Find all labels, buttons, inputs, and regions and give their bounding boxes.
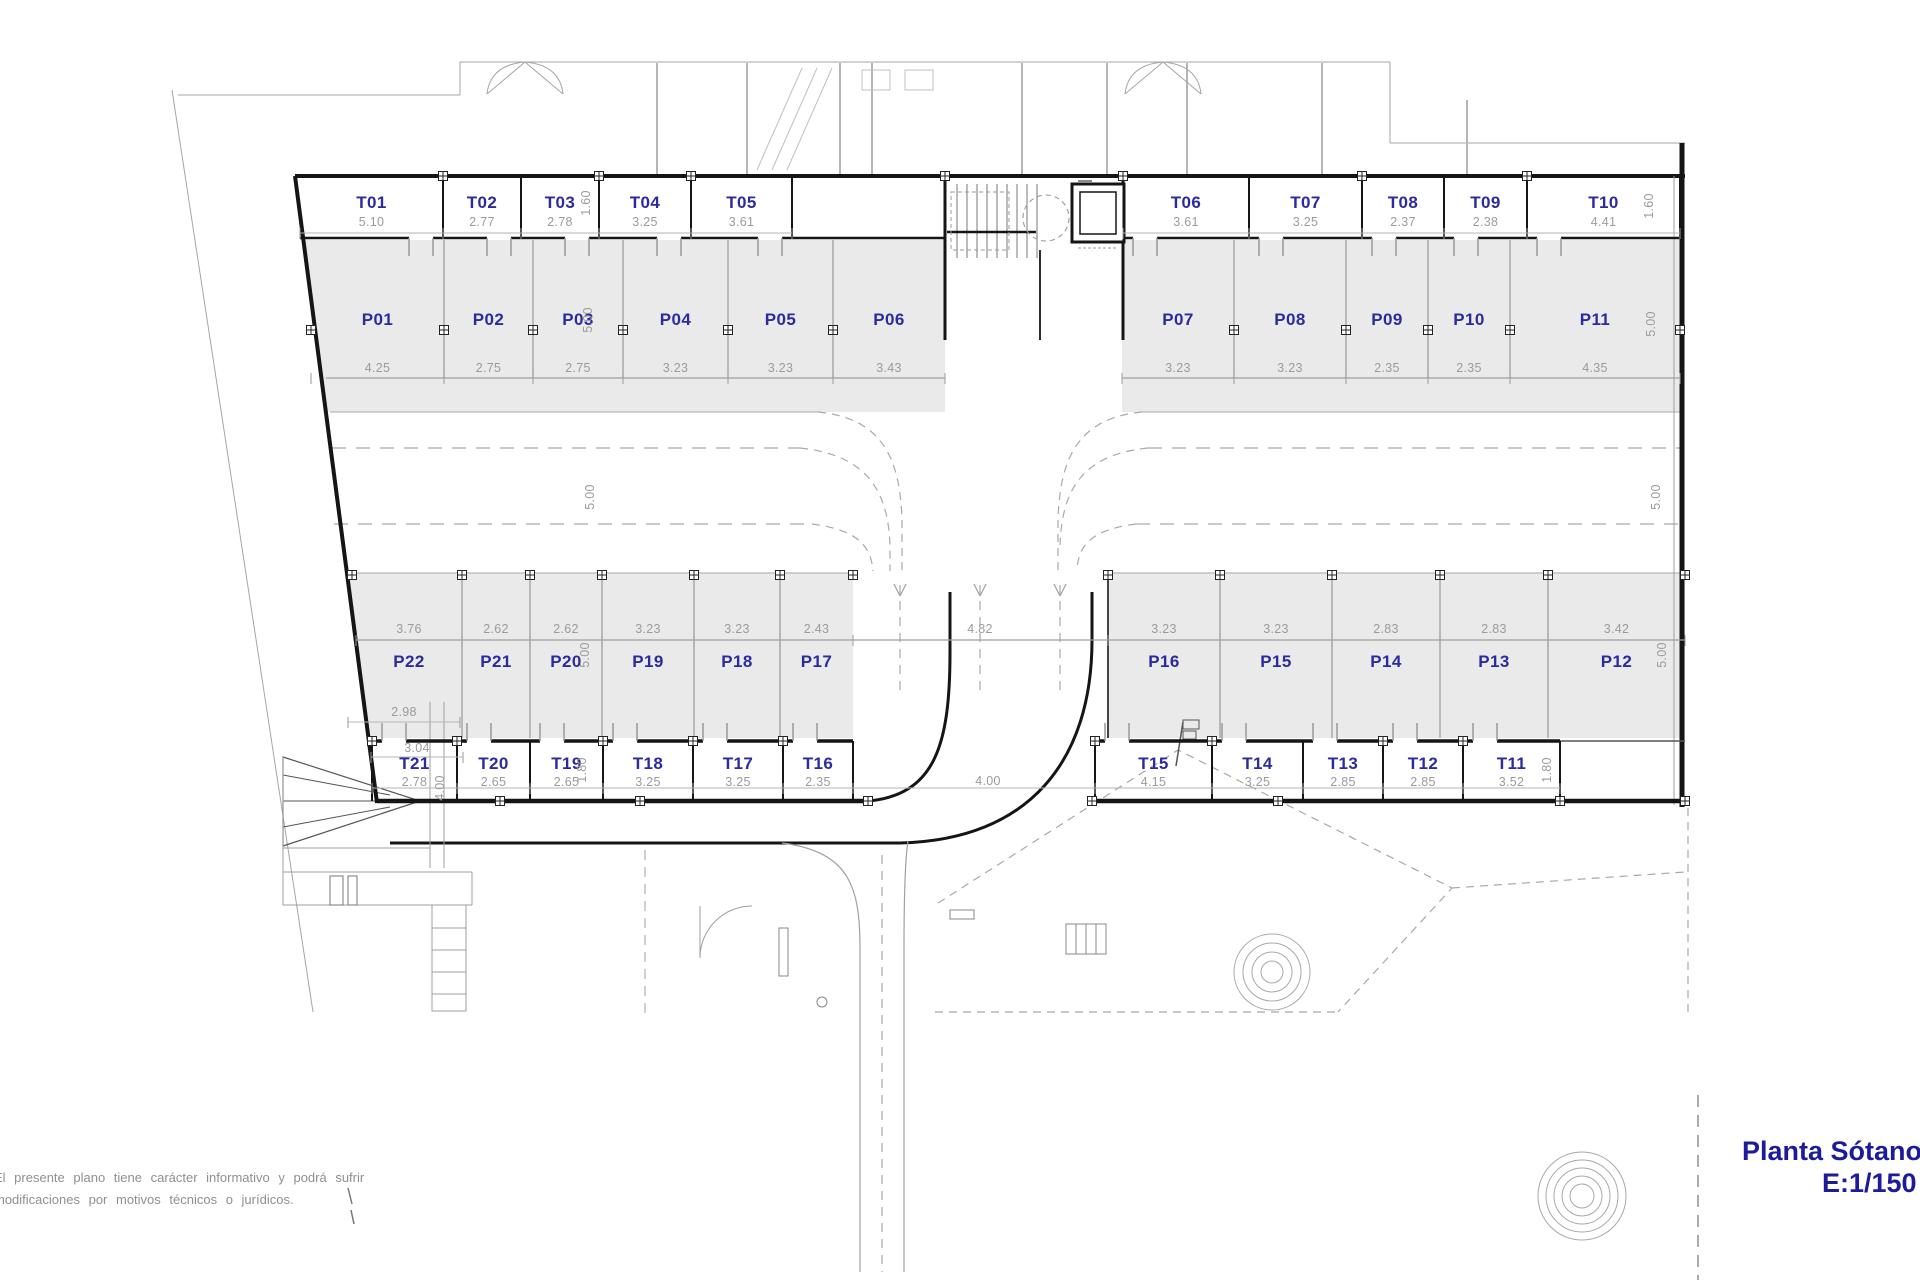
parking-stall-label: P17 [801,652,832,672]
parking-stall-label: P20 [550,652,581,672]
parking-stall-width-dim: 3.23 [1165,361,1191,375]
storage-room-label: T21 [399,754,430,774]
parking-stall-label: P05 [765,310,796,330]
parking-stall-width-dim: 2.83 [1373,622,1399,636]
depth-dim-label: 5.00 [578,642,592,668]
parking-stall-label: P18 [721,652,752,672]
aisle-dim-label: 4.82 [967,622,993,636]
storage-room-width-dim: 3.52 [1499,775,1525,789]
parking-stall-label: P11 [1580,310,1611,330]
depth-dim-label: 5.00 [583,484,597,510]
parking-stall-width-dim: 2.75 [565,361,591,375]
parking-stall-width-dim: 3.23 [635,622,661,636]
parking-stall-width-dim: 3.23 [724,622,750,636]
parking-stall-label: P09 [1371,310,1402,330]
basement-floor-plan: T015.10T022.77T032.78T043.25T053.61T063.… [0,0,1920,1280]
storage-room-width-dim: 3.61 [729,215,755,229]
storage-room-label: T14 [1242,754,1273,774]
storage-room-label: T17 [723,754,754,774]
depth-dim-label: 1.80 [1540,757,1554,783]
plan-title: Planta Sótano [1742,1136,1920,1167]
depth-dim-label: 4.00 [433,775,447,801]
storage-room-width-dim: 5.10 [359,215,385,229]
storage-room-width-dim: 4.15 [1141,775,1167,789]
parking-stall-width-dim: 2.35 [1374,361,1400,375]
depth-dim-label: 5.00 [581,307,595,333]
parking-stall-label: P19 [632,652,663,672]
aisle-dim-label: 2.98 [391,705,417,719]
storage-room-width-dim: 2.78 [547,215,573,229]
storage-room-label: T01 [356,193,387,213]
parking-stall-width-dim: 3.76 [396,622,422,636]
parking-stall-width-dim: 2.62 [483,622,509,636]
storage-room-width-dim: 3.25 [632,215,658,229]
storage-room-width-dim: 4.41 [1591,215,1617,229]
storage-room-width-dim: 2.78 [402,775,428,789]
parking-stall-label: P01 [362,310,393,330]
parking-stall-label: P07 [1162,310,1193,330]
storage-room-label: T12 [1408,754,1439,774]
parking-stall-width-dim: 3.43 [876,361,902,375]
storage-room-width-dim: 2.38 [1473,215,1499,229]
storage-room-label: T04 [630,193,661,213]
disclaimer-line-2: modificaciones por motivos técnicos o ju… [0,1192,294,1207]
storage-room-label: T18 [633,754,664,774]
labels-layer: T015.10T022.77T032.78T043.25T053.61T063.… [0,0,1920,1280]
parking-stall-label: P15 [1260,652,1291,672]
storage-room-width-dim: 2.85 [1410,775,1436,789]
parking-stall-label: P16 [1148,652,1179,672]
parking-stall-width-dim: 2.83 [1481,622,1507,636]
parking-stall-width-dim: 2.35 [1456,361,1482,375]
storage-room-label: T15 [1138,754,1169,774]
parking-stall-label: P21 [480,652,511,672]
parking-stall-label: P12 [1601,652,1632,672]
storage-room-width-dim: 3.25 [635,775,661,789]
storage-room-label: T06 [1171,193,1202,213]
storage-room-width-dim: 3.61 [1173,215,1199,229]
parking-stall-width-dim: 3.42 [1604,622,1630,636]
storage-room-width-dim: 3.25 [1245,775,1271,789]
parking-stall-width-dim: 2.43 [804,622,830,636]
storage-room-width-dim: 2.35 [805,775,831,789]
storage-room-label: T16 [803,754,834,774]
parking-stall-width-dim: 3.23 [1151,622,1177,636]
depth-dim-label: 1.80 [575,757,589,783]
parking-stall-width-dim: 3.23 [768,361,794,375]
aisle-dim-label: 3.04 [404,741,430,755]
storage-room-label: T08 [1388,193,1419,213]
parking-stall-width-dim: 3.23 [1277,361,1303,375]
depth-dim-label: 5.00 [1644,311,1658,337]
storage-room-label: T07 [1290,193,1321,213]
aisle-dim-label: 4.00 [975,774,1001,788]
parking-stall-width-dim: 2.62 [553,622,579,636]
storage-room-label: T11 [1497,754,1527,774]
storage-room-width-dim: 3.25 [725,775,751,789]
parking-stall-label: P06 [873,310,904,330]
depth-dim-label: 1.60 [579,190,593,216]
depth-dim-label: 5.00 [1655,642,1669,668]
storage-room-width-dim: 2.37 [1390,215,1416,229]
storage-room-label: T20 [478,754,509,774]
parking-stall-width-dim: 2.75 [476,361,502,375]
parking-stall-label: P22 [393,652,424,672]
storage-room-width-dim: 2.65 [481,775,507,789]
parking-stall-label: P10 [1453,310,1484,330]
disclaimer-line-1: El presente plano tiene carácter informa… [0,1170,364,1185]
parking-stall-label: P02 [473,310,504,330]
storage-room-label: T13 [1328,754,1359,774]
storage-room-label: T05 [726,193,757,213]
parking-stall-width-dim: 4.25 [365,361,391,375]
parking-stall-label: P08 [1274,310,1305,330]
storage-room-width-dim: 3.25 [1293,215,1319,229]
parking-stall-label: P14 [1370,652,1401,672]
depth-dim-label: 5.00 [1649,484,1663,510]
parking-stall-width-dim: 3.23 [1263,622,1289,636]
parking-stall-width-dim: 3.23 [663,361,689,375]
plan-scale-label: E:1/150 [1822,1168,1917,1199]
parking-stall-width-dim: 4.35 [1582,361,1608,375]
storage-room-label: T10 [1588,193,1619,213]
storage-room-label: T09 [1470,193,1501,213]
parking-stall-label: P04 [660,310,691,330]
parking-stall-label: P13 [1478,652,1509,672]
storage-room-width-dim: 2.85 [1330,775,1356,789]
depth-dim-label: 1.60 [1642,193,1656,219]
storage-room-width-dim: 2.77 [469,215,495,229]
storage-room-label: T03 [545,193,576,213]
storage-room-label: T02 [467,193,498,213]
